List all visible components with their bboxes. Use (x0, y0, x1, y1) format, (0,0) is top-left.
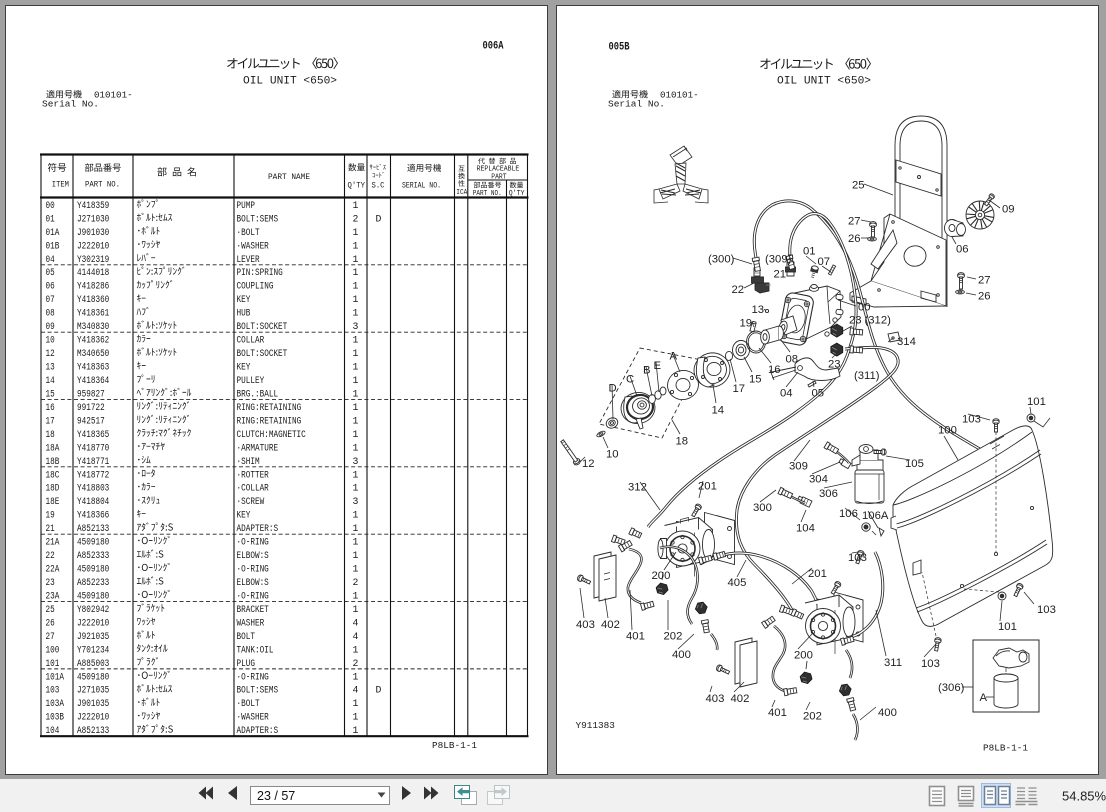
svg-text:17: 17 (46, 415, 55, 426)
svg-text:A852233: A852233 (77, 577, 109, 588)
svg-text:13: 13 (46, 362, 55, 373)
svg-text:OIL UNIT <650>: OIL UNIT <650> (777, 76, 871, 88)
svg-text:200: 200 (794, 650, 813, 662)
svg-text:202: 202 (803, 711, 822, 723)
svg-text:·O-RING: ·O-RING (237, 671, 269, 682)
svg-text:BOLT:SEMS: BOLT:SEMS (237, 213, 279, 224)
svg-text:1: 1 (353, 564, 359, 575)
svg-text:1: 1 (353, 469, 359, 480)
svg-text:ELBOW:S: ELBOW:S (237, 577, 269, 588)
svg-text:1: 1 (353, 698, 359, 709)
svg-text:Serial No.: Serial No. (42, 99, 99, 110)
svg-text:Y302319: Y302319 (77, 254, 109, 265)
svg-text:·WASHER: ·WASHER (237, 240, 269, 251)
svg-text:400: 400 (878, 707, 897, 719)
svg-text:991722: 991722 (77, 402, 105, 413)
svg-text:105: 105 (905, 458, 924, 470)
svg-text:·O-RING: ·O-RING (237, 590, 269, 601)
svg-text:09: 09 (46, 321, 55, 332)
svg-text:Y911383: Y911383 (576, 720, 616, 731)
svg-text:Y418362: Y418362 (77, 335, 109, 346)
svg-text:401: 401 (626, 631, 645, 643)
svg-text:09: 09 (1002, 204, 1015, 216)
svg-text:KEY: KEY (237, 294, 251, 305)
svg-text:Y418804: Y418804 (77, 496, 109, 507)
svg-text:19: 19 (46, 510, 55, 521)
svg-text:J222010: J222010 (77, 712, 109, 723)
svg-text:Q'TY: Q'TY (509, 190, 525, 198)
svg-text:22: 22 (732, 284, 745, 296)
svg-text:D: D (376, 685, 382, 696)
svg-text:103: 103 (46, 685, 60, 696)
svg-text:006A: 006A (483, 41, 504, 53)
svg-text:SERIAL NO.: SERIAL NO. (402, 181, 441, 191)
svg-text:1: 1 (353, 429, 359, 440)
svg-text:OIL UNIT <650>: OIL UNIT <650> (243, 76, 337, 88)
svg-text:13: 13 (752, 304, 765, 316)
svg-text:04: 04 (780, 388, 793, 400)
svg-text:005B: 005B (609, 42, 630, 54)
svg-text:07: 07 (46, 294, 55, 305)
svg-text:311: 311 (884, 657, 902, 669)
svg-text:16: 16 (46, 402, 55, 413)
svg-text:401: 401 (768, 707, 787, 719)
svg-text:Y418361: Y418361 (77, 308, 109, 319)
svg-text:18C: 18C (46, 469, 60, 480)
svg-text:·ARMATURE: ·ARMATURE (237, 442, 279, 453)
svg-text:A852133: A852133 (77, 523, 109, 534)
svg-text:1: 1 (353, 644, 359, 655)
svg-text:(309): (309) (765, 254, 792, 266)
svg-text:403: 403 (576, 619, 595, 631)
svg-text:TANK:OIL: TANK:OIL (237, 644, 274, 655)
svg-text:KEY: KEY (237, 510, 251, 521)
svg-text:·BOLT: ·BOLT (237, 698, 260, 709)
svg-text:21: 21 (46, 523, 55, 534)
svg-text:·SHIM: ·SHIM (237, 456, 260, 467)
svg-text:RING:RETAINING: RING:RETAINING (237, 415, 302, 426)
svg-text:4: 4 (353, 631, 359, 642)
svg-text:J901035: J901035 (77, 698, 109, 709)
svg-text:BOLT: BOLT (237, 631, 256, 642)
svg-text:1: 1 (353, 415, 359, 426)
svg-text:A: A (670, 351, 678, 363)
svg-text:12: 12 (582, 458, 595, 470)
svg-text:ICA: ICA (456, 189, 467, 197)
svg-text:201: 201 (808, 568, 827, 580)
svg-text:(300): (300) (708, 254, 735, 266)
svg-text:1: 1 (353, 604, 359, 615)
svg-text:BOLT:SOCKET: BOLT:SOCKET (237, 348, 288, 359)
svg-text:23: 23 (828, 359, 841, 371)
svg-text:405: 405 (728, 577, 747, 589)
svg-text:P8LB-1-1: P8LB-1-1 (983, 743, 1028, 754)
svg-text:306: 306 (819, 488, 838, 500)
svg-text:1: 1 (353, 402, 359, 413)
svg-text:Y418360: Y418360 (77, 294, 109, 305)
svg-text:1: 1 (353, 523, 359, 534)
svg-text:1: 1 (353, 375, 359, 386)
svg-text:PUMP: PUMP (237, 200, 256, 211)
svg-text:312: 312 (628, 482, 647, 494)
svg-text:010101-: 010101- (660, 90, 699, 101)
svg-text:Y418359: Y418359 (77, 200, 109, 211)
svg-text:3: 3 (353, 456, 359, 467)
svg-text:Y418363: Y418363 (77, 362, 109, 373)
svg-text:·SCREW: ·SCREW (237, 496, 265, 507)
svg-text:C: C (626, 374, 634, 386)
svg-text:101A: 101A (46, 671, 65, 682)
svg-text:(306): (306) (938, 682, 965, 694)
svg-text:PART NO.: PART NO. (85, 180, 120, 190)
svg-text:14: 14 (46, 375, 55, 386)
svg-text:1: 1 (353, 227, 359, 238)
svg-text:COLLAR: COLLAR (237, 335, 265, 346)
svg-text:B: B (643, 365, 651, 377)
svg-text:23: 23 (46, 577, 55, 588)
svg-text:LEVER: LEVER (237, 254, 260, 265)
svg-text:HUB: HUB (237, 308, 251, 319)
svg-text:00: 00 (858, 302, 871, 314)
svg-text:402: 402 (601, 619, 620, 631)
svg-text:3: 3 (353, 321, 359, 332)
svg-text:22A: 22A (46, 564, 60, 575)
svg-text:12: 12 (46, 348, 55, 359)
svg-text:15: 15 (749, 374, 762, 386)
svg-text:106A: 106A (862, 510, 889, 522)
svg-text:01: 01 (46, 213, 55, 224)
svg-text:200: 200 (652, 570, 671, 582)
svg-text:Q'TY: Q'TY (348, 181, 366, 191)
svg-text:23: 23 (849, 315, 862, 327)
svg-text:00: 00 (46, 200, 55, 211)
svg-text:RING:RETAINING: RING:RETAINING (237, 402, 302, 413)
svg-text:103: 103 (1037, 604, 1056, 616)
svg-text:104: 104 (46, 725, 60, 736)
svg-text:Y802942: Y802942 (77, 604, 109, 615)
svg-text:1: 1 (353, 483, 359, 494)
svg-text:300: 300 (753, 502, 772, 514)
svg-text:S.C: S.C (372, 181, 385, 191)
svg-text:26: 26 (46, 617, 55, 628)
svg-text:101: 101 (46, 658, 60, 669)
svg-text:1: 1 (353, 725, 359, 736)
svg-text:101: 101 (1027, 396, 1046, 408)
svg-text:·O-RING: ·O-RING (237, 537, 269, 548)
svg-text:101: 101 (998, 621, 1017, 633)
svg-text:REPLACEABLE: REPLACEABLE (477, 166, 520, 174)
svg-text:·O-RING: ·O-RING (237, 564, 269, 575)
svg-text:4: 4 (353, 617, 359, 628)
svg-text:J222010: J222010 (77, 617, 109, 628)
svg-text:ELBOW:S: ELBOW:S (237, 550, 269, 561)
svg-text:Y418770: Y418770 (77, 442, 109, 453)
svg-text:103: 103 (921, 658, 940, 670)
svg-text:J222010: J222010 (77, 240, 109, 251)
svg-text:08: 08 (786, 354, 799, 366)
svg-text:COUPLING: COUPLING (237, 281, 274, 292)
svg-text:PULLEY: PULLEY (237, 375, 265, 386)
svg-text:16: 16 (768, 364, 781, 376)
svg-text:J901030: J901030 (77, 227, 109, 238)
svg-text:18: 18 (676, 436, 689, 448)
svg-text:18A: 18A (46, 442, 60, 453)
svg-text:4509180: 4509180 (77, 564, 109, 575)
svg-text:201: 201 (698, 481, 717, 493)
svg-text:2: 2 (353, 213, 359, 224)
svg-text:1: 1 (353, 590, 359, 601)
svg-text:104: 104 (796, 523, 815, 535)
svg-text:(311): (311) (854, 370, 880, 382)
svg-text:1: 1 (353, 442, 359, 453)
svg-text:01: 01 (803, 246, 816, 258)
svg-text:1: 1 (353, 254, 359, 265)
svg-text:15: 15 (46, 388, 55, 399)
svg-text:08: 08 (46, 308, 55, 319)
svg-text:2: 2 (353, 577, 359, 588)
svg-text:27: 27 (848, 216, 861, 228)
svg-text:100: 100 (938, 425, 957, 437)
svg-text:1: 1 (353, 335, 359, 346)
svg-text:17: 17 (733, 383, 746, 395)
svg-text:·BOLT: ·BOLT (237, 227, 260, 238)
svg-text:26: 26 (848, 233, 861, 245)
svg-text:J921035: J921035 (77, 631, 109, 642)
svg-text:103A: 103A (46, 698, 65, 709)
svg-text:WASHER: WASHER (237, 617, 265, 628)
svg-text:KEY: KEY (237, 362, 251, 373)
svg-text:25: 25 (852, 180, 865, 192)
svg-text:18E: 18E (46, 496, 60, 507)
svg-text:1: 1 (353, 510, 359, 521)
svg-text:Y701234: Y701234 (77, 644, 109, 655)
svg-text:23 / 57: 23 / 57 (257, 789, 295, 803)
svg-text:04: 04 (46, 254, 55, 265)
svg-text:22: 22 (46, 550, 55, 561)
svg-text:1: 1 (353, 240, 359, 251)
svg-text:403: 403 (706, 693, 725, 705)
svg-text:1: 1 (353, 294, 359, 305)
svg-text:M340830: M340830 (77, 321, 109, 332)
svg-text:BRACKET: BRACKET (237, 604, 269, 615)
svg-text:21: 21 (774, 269, 787, 281)
svg-text:3: 3 (353, 496, 359, 507)
svg-text:309: 309 (789, 461, 808, 473)
svg-text:J271030: J271030 (77, 213, 109, 224)
svg-text:4509180: 4509180 (77, 590, 109, 601)
svg-text:01B: 01B (46, 240, 60, 251)
svg-text:A: A (980, 692, 988, 704)
svg-text:1: 1 (353, 348, 359, 359)
svg-text:06: 06 (46, 281, 55, 292)
svg-text:1: 1 (353, 200, 359, 211)
svg-text:942517: 942517 (77, 415, 105, 426)
svg-text:10: 10 (46, 335, 55, 346)
svg-text:PART NAME: PART NAME (268, 172, 310, 182)
svg-text:18B: 18B (46, 456, 60, 467)
svg-text:1: 1 (353, 712, 359, 723)
svg-text:Serial No.: Serial No. (608, 99, 665, 110)
svg-text:1: 1 (353, 308, 359, 319)
svg-text:Y418803: Y418803 (77, 483, 109, 494)
svg-text:21A: 21A (46, 537, 60, 548)
svg-text:14: 14 (712, 405, 725, 417)
svg-text:E: E (654, 360, 662, 372)
svg-text:4509180: 4509180 (77, 537, 109, 548)
svg-text:Y418286: Y418286 (77, 281, 109, 292)
svg-text:2: 2 (353, 658, 359, 669)
svg-text:1: 1 (353, 671, 359, 682)
svg-text:10: 10 (606, 449, 619, 461)
svg-text:BOLT:SOCKET: BOLT:SOCKET (237, 321, 288, 332)
svg-text:(312): (312) (865, 315, 892, 327)
svg-text:07: 07 (818, 256, 831, 268)
svg-text:J271035: J271035 (77, 685, 109, 696)
svg-text:27: 27 (46, 631, 55, 642)
svg-text:A852333: A852333 (77, 550, 109, 561)
svg-text:PART: PART (491, 174, 507, 182)
svg-text:314: 314 (897, 336, 916, 348)
svg-text:4144018: 4144018 (77, 267, 109, 278)
svg-text:·WASHER: ·WASHER (237, 712, 269, 723)
svg-text:1: 1 (353, 362, 359, 373)
svg-text:·COLLAR: ·COLLAR (237, 483, 269, 494)
svg-text:1: 1 (353, 537, 359, 548)
svg-text:103B: 103B (46, 712, 65, 723)
svg-text:304: 304 (809, 474, 828, 486)
svg-text:D: D (609, 383, 617, 395)
svg-text:1: 1 (353, 267, 359, 278)
svg-text:ADAPTER:S: ADAPTER:S (237, 523, 279, 534)
svg-text:PIN:SPRING: PIN:SPRING (237, 267, 283, 278)
svg-text:A852133: A852133 (77, 725, 109, 736)
svg-text:400: 400 (672, 649, 691, 661)
svg-text:402: 402 (731, 693, 750, 705)
svg-text:BOLT:SEMS: BOLT:SEMS (237, 685, 279, 696)
svg-text:PART NO.: PART NO. (473, 190, 502, 198)
svg-text:06: 06 (956, 244, 969, 256)
svg-text:05: 05 (812, 388, 825, 400)
svg-text:27: 27 (978, 275, 991, 287)
svg-text:010101-: 010101- (94, 90, 133, 101)
svg-text:Y418772: Y418772 (77, 469, 109, 480)
svg-text:D: D (376, 213, 382, 224)
svg-text:A885003: A885003 (77, 658, 109, 669)
svg-text:CLUTCH:MAGNETIC: CLUTCH:MAGNETIC (237, 429, 306, 440)
svg-text:103: 103 (962, 414, 981, 426)
svg-text:M340650: M340650 (77, 348, 109, 359)
svg-text:Y418365: Y418365 (77, 429, 109, 440)
svg-text:106: 106 (839, 508, 858, 520)
svg-text:Y418366: Y418366 (77, 510, 109, 521)
svg-text:P8LB-1-1: P8LB-1-1 (432, 740, 477, 751)
svg-text:Y418364: Y418364 (77, 375, 109, 386)
svg-text:4509180: 4509180 (77, 671, 109, 682)
svg-text:ADAPTER:S: ADAPTER:S (237, 725, 279, 736)
svg-text:1: 1 (353, 281, 359, 292)
svg-text:25: 25 (46, 604, 55, 615)
svg-text:1: 1 (353, 388, 359, 399)
svg-text:100: 100 (46, 644, 60, 655)
svg-text:·ROTTER: ·ROTTER (237, 469, 269, 480)
svg-text:26: 26 (978, 291, 991, 303)
svg-text:05: 05 (46, 267, 55, 278)
svg-text:01A: 01A (46, 227, 60, 238)
svg-text:4: 4 (353, 685, 359, 696)
svg-text:1: 1 (353, 550, 359, 561)
svg-text:54.85%: 54.85% (1062, 789, 1106, 804)
svg-text:Y418771: Y418771 (77, 456, 109, 467)
svg-text:BRG.:BALL: BRG.:BALL (237, 388, 279, 399)
svg-text:ITEM: ITEM (52, 180, 69, 190)
svg-text:103: 103 (848, 552, 867, 564)
svg-text:19: 19 (740, 318, 753, 330)
svg-text:202: 202 (664, 631, 683, 643)
svg-text:959827: 959827 (77, 388, 105, 399)
svg-text:PLUG: PLUG (237, 658, 256, 669)
svg-text:18D: 18D (46, 483, 60, 494)
svg-text:23A: 23A (46, 590, 60, 601)
svg-text:18: 18 (46, 429, 55, 440)
